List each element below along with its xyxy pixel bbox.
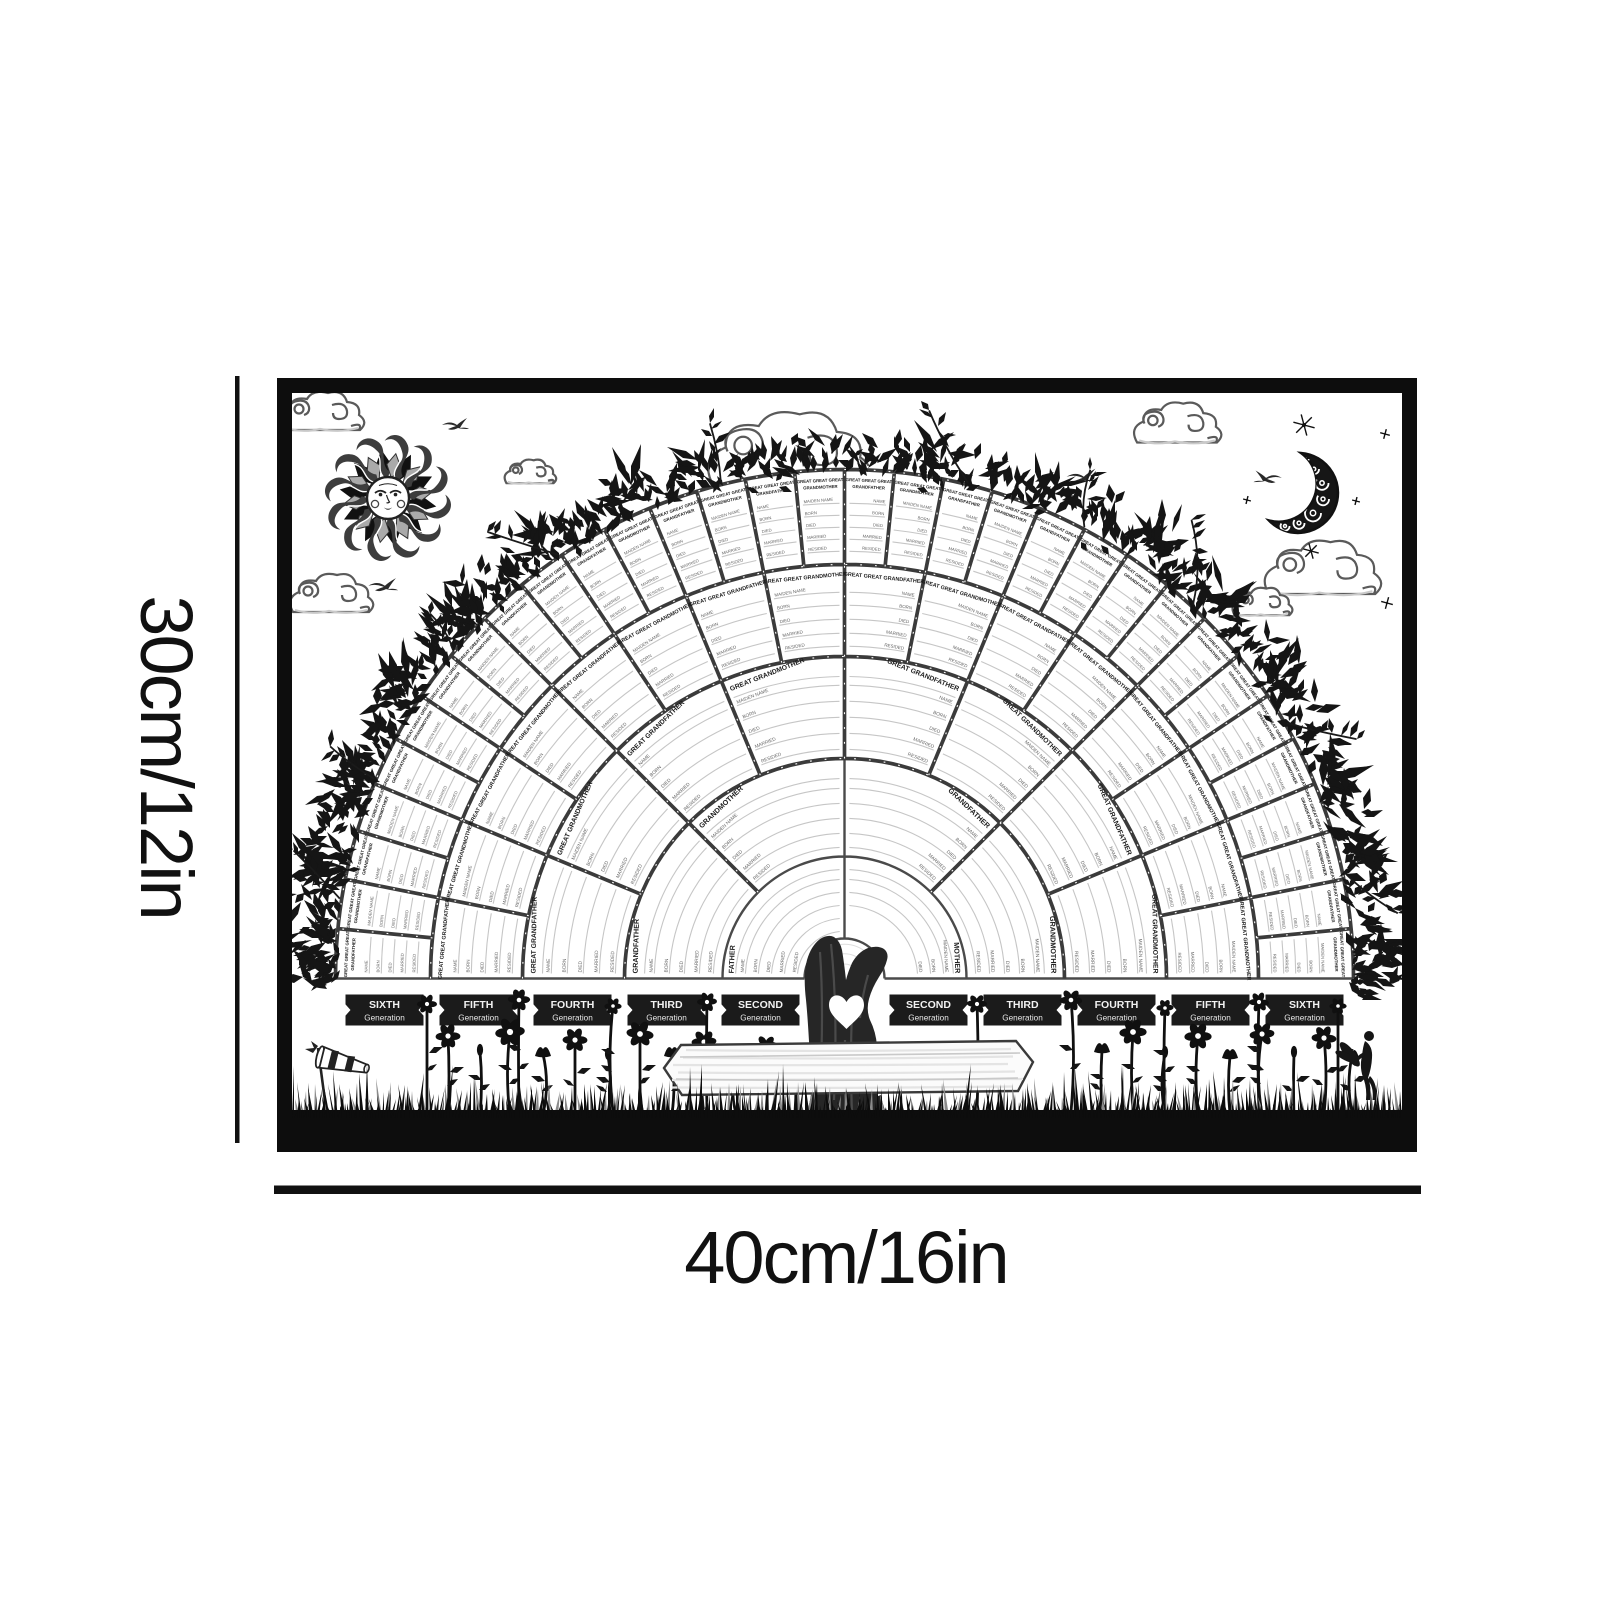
svg-text:NAME: NAME (546, 959, 552, 973)
svg-text:MAIDEN NAME: MAIDEN NAME (1231, 941, 1236, 973)
svg-text:BORN: BORN (376, 960, 381, 972)
svg-text:DIED: DIED (578, 960, 584, 972)
svg-text:Generation: Generation (1096, 1014, 1137, 1023)
svg-text:Generation: Generation (646, 1014, 687, 1023)
svg-text:SIXTH: SIXTH (1289, 999, 1320, 1011)
svg-text:RESIDED: RESIDED (507, 952, 512, 973)
svg-text:MARRIED: MARRIED (400, 953, 405, 972)
svg-text:MAIDEN NAME: MAIDEN NAME (1137, 939, 1144, 973)
svg-text:BORN: BORN (1218, 959, 1223, 972)
svg-text:BORN: BORN (872, 510, 884, 516)
svg-text:DIED: DIED (388, 962, 393, 972)
svg-text:FIFTH: FIFTH (1196, 999, 1226, 1011)
svg-text:BORN: BORN (664, 958, 670, 973)
svg-text:Generation: Generation (1002, 1014, 1043, 1023)
svg-text:MARRIED: MARRIED (1190, 952, 1195, 974)
svg-text:Generation: Generation (1190, 1014, 1231, 1023)
svg-text:RESIDED: RESIDED (974, 951, 981, 973)
svg-text:FOURTH: FOURTH (551, 999, 595, 1011)
svg-text:BORN: BORN (562, 958, 568, 973)
svg-text:RESIDED: RESIDED (708, 950, 715, 972)
svg-text:NAME: NAME (873, 498, 886, 504)
svg-text:MARRIED: MARRIED (989, 950, 996, 973)
svg-text:MARRIED: MARRIED (1284, 953, 1289, 972)
svg-text:FOURTH: FOURTH (1095, 999, 1139, 1011)
svg-text:MARRIED: MARRIED (594, 950, 601, 973)
svg-text:THIRD: THIRD (650, 999, 682, 1011)
svg-text:NAME: NAME (364, 960, 369, 972)
svg-text:RESIDED: RESIDED (412, 954, 417, 973)
svg-text:MOTHER: MOTHER (952, 942, 962, 974)
svg-text:DIED: DIED (1296, 962, 1301, 972)
svg-text:Generation: Generation (458, 1014, 499, 1023)
svg-text:BORN: BORN (805, 510, 817, 516)
svg-text:BORN: BORN (1308, 960, 1313, 972)
svg-text:SECOND: SECOND (906, 999, 951, 1011)
svg-text:FIFTH: FIFTH (464, 999, 494, 1011)
svg-text:BORN: BORN (753, 959, 759, 973)
svg-text:GRANDFATHER: GRANDFATHER (631, 918, 641, 974)
svg-text:FATHER: FATHER (727, 944, 737, 973)
svg-text:GREAT GRANDFATHER: GREAT GRANDFATHER (531, 897, 539, 974)
svg-text:RESIDED: RESIDED (1272, 954, 1277, 973)
svg-text:Generation: Generation (908, 1014, 949, 1023)
svg-text:MARRIED: MARRIED (694, 950, 701, 973)
svg-text:Generation: Generation (1284, 1014, 1325, 1023)
svg-text:RESIDED: RESIDED (1177, 952, 1182, 973)
svg-text:DIED: DIED (480, 961, 485, 973)
svg-text:GRANDMOTHER: GRANDMOTHER (1048, 916, 1058, 975)
svg-text:NAME: NAME (453, 959, 458, 972)
svg-text:30cm/12in: 30cm/12in (125, 595, 208, 918)
svg-text:SIXTH: SIXTH (369, 999, 400, 1011)
svg-text:DIED: DIED (1204, 962, 1209, 974)
svg-text:BORN: BORN (1121, 959, 1127, 974)
svg-text:MAIDEN NAME: MAIDEN NAME (1033, 939, 1040, 973)
svg-text:SECOND: SECOND (738, 999, 783, 1011)
svg-text:DIED: DIED (806, 522, 816, 528)
svg-text:DIED: DIED (917, 961, 923, 973)
svg-text:RESIDED: RESIDED (1073, 951, 1080, 973)
svg-text:NAME: NAME (649, 959, 655, 973)
svg-text:DIED: DIED (1004, 961, 1010, 973)
svg-text:BORN: BORN (930, 959, 936, 973)
svg-text:BORN: BORN (1019, 959, 1025, 974)
svg-text:Generation: Generation (552, 1014, 593, 1023)
svg-text:DIED: DIED (873, 522, 883, 528)
svg-text:DIED: DIED (679, 960, 685, 972)
svg-text:Generation: Generation (364, 1014, 405, 1023)
svg-text:MARRIED: MARRIED (494, 951, 499, 973)
svg-text:DIED: DIED (1105, 961, 1111, 973)
svg-text:MAIDEN NAME: MAIDEN NAME (1320, 943, 1325, 973)
svg-text:GREAT GRANDMOTHER: GREAT GRANDMOTHER (1150, 894, 1158, 974)
svg-text:MARRIED: MARRIED (1089, 950, 1096, 973)
svg-text:DIED: DIED (766, 961, 772, 973)
svg-text:RESIDED: RESIDED (610, 951, 617, 973)
svg-text:NAME: NAME (740, 959, 746, 973)
svg-text:BORN: BORN (466, 959, 471, 972)
svg-text:THIRD: THIRD (1006, 999, 1038, 1011)
svg-text:Generation: Generation (740, 1014, 781, 1023)
svg-text:40cm/16in: 40cm/16in (684, 1216, 1007, 1299)
